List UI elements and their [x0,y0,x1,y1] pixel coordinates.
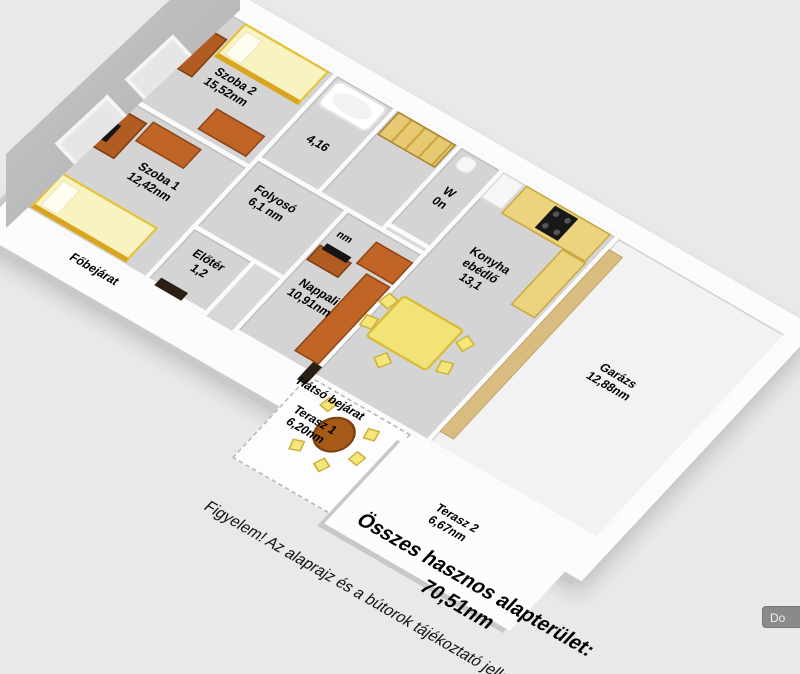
dock-badge-button[interactable]: Do [762,606,800,628]
burner-icon [541,222,550,230]
floorplan-canvas: Szoba 2 15,52nm Szoba 1 12,42nm 4,16 W 0… [0,0,800,674]
burner-icon [552,229,561,237]
burner-icon [551,210,560,218]
burner-icon [563,217,572,225]
